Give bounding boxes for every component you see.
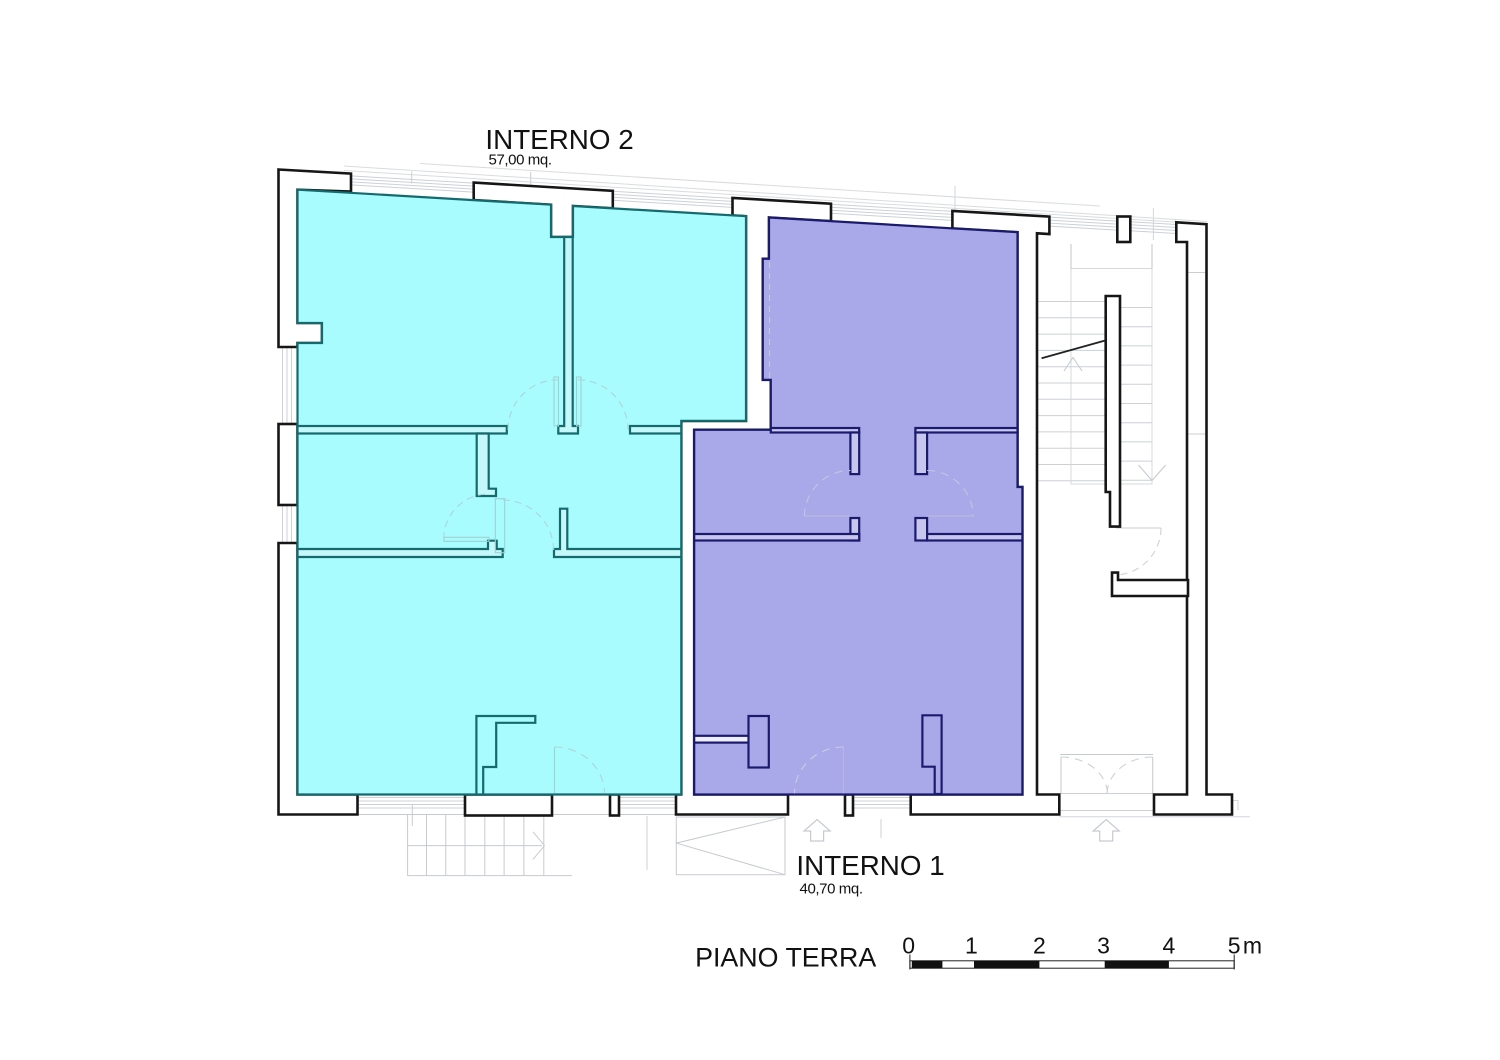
svg-text:0: 0: [902, 933, 915, 959]
svg-text:m: m: [1243, 933, 1262, 959]
svg-text:1: 1: [965, 933, 978, 959]
svg-text:PIANO TERRA: PIANO TERRA: [695, 943, 876, 973]
svg-text:INTERNO 2: INTERNO 2: [485, 124, 633, 155]
svg-text:5: 5: [1228, 933, 1241, 959]
svg-text:40,70 mq.: 40,70 mq.: [800, 881, 863, 898]
svg-text:4: 4: [1163, 933, 1176, 959]
svg-text:2: 2: [1033, 933, 1046, 959]
svg-text:3: 3: [1097, 933, 1110, 959]
svg-text:57,00 mq.: 57,00 mq.: [489, 152, 552, 169]
svg-text:INTERNO 1: INTERNO 1: [796, 850, 944, 881]
